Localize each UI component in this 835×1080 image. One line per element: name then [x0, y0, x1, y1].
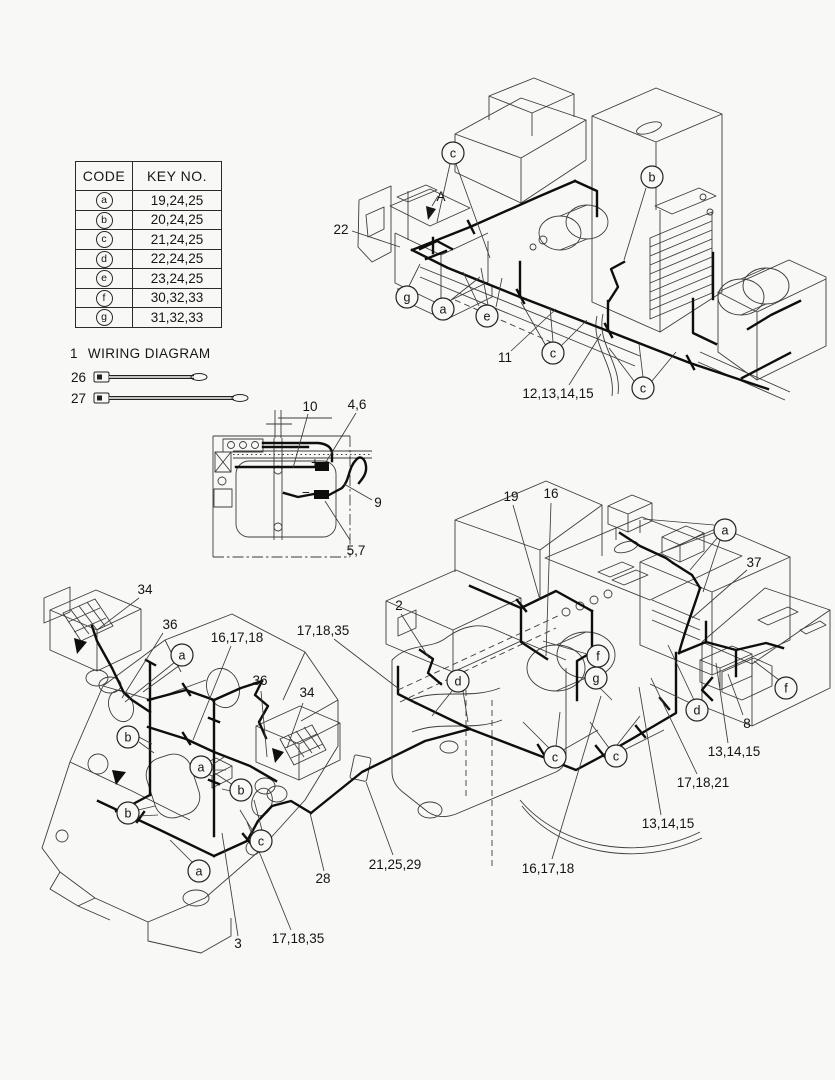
- svg-text:b: b: [125, 807, 132, 821]
- part-label: 16: [543, 486, 558, 501]
- top-rear-view-art: [358, 78, 826, 400]
- callout-a: a: [188, 860, 210, 882]
- part-label: 4,6: [348, 397, 367, 412]
- callout-b: b: [117, 726, 139, 748]
- svg-text:d: d: [694, 704, 701, 718]
- callout-c: c: [250, 830, 272, 852]
- part-label: 5,7: [347, 543, 366, 558]
- svg-text:f: f: [784, 682, 788, 696]
- svg-text:a: a: [440, 303, 447, 317]
- svg-text:c: c: [640, 382, 646, 396]
- callout-g: g: [396, 286, 418, 308]
- view-arrow-label: A: [436, 189, 445, 204]
- callout-c: c: [544, 746, 566, 768]
- part-label: 13,14,15: [642, 816, 695, 831]
- part-label: 16,17,18: [211, 630, 264, 645]
- callout-b: b: [230, 779, 252, 801]
- part-label: 37: [746, 555, 761, 570]
- svg-text:d: d: [455, 675, 462, 689]
- svg-text:e: e: [484, 310, 491, 324]
- svg-text:a: a: [179, 649, 186, 663]
- svg-text:c: c: [258, 835, 264, 849]
- callout-c: c: [542, 342, 564, 364]
- part-label: 34: [299, 685, 315, 700]
- svg-text:f: f: [596, 650, 600, 664]
- svg-text:b: b: [238, 784, 245, 798]
- part-label: 10: [302, 399, 317, 414]
- svg-text:a: a: [198, 761, 205, 775]
- callout-g: g: [585, 667, 607, 689]
- svg-text:g: g: [404, 291, 411, 305]
- callout-c: c: [605, 745, 627, 767]
- callout-f: f: [587, 645, 609, 667]
- part-label: 3: [234, 936, 242, 951]
- part-label: 16,17,18: [522, 861, 575, 876]
- callout-a: a: [432, 298, 454, 320]
- part-label: 22: [333, 222, 348, 237]
- callout-b: b: [641, 166, 663, 188]
- callout-a: a: [190, 756, 212, 778]
- minus-terminal-label: −: [302, 485, 310, 500]
- svg-text:c: c: [550, 347, 556, 361]
- callout-a: a: [171, 644, 193, 666]
- part-label: 9: [374, 495, 382, 510]
- part-label: 2: [395, 598, 403, 613]
- callout-c: c: [442, 142, 464, 164]
- part-label: 17,18,21: [677, 775, 730, 790]
- svg-text:c: c: [450, 147, 456, 161]
- part-label: 28: [315, 871, 330, 886]
- battery-box-inset-art: [213, 410, 372, 557]
- part-label: 34: [137, 582, 153, 597]
- callout-c: c: [632, 377, 654, 399]
- callout-e: e: [476, 305, 498, 327]
- svg-text:a: a: [722, 524, 729, 538]
- svg-text:b: b: [649, 171, 656, 185]
- callout-b: b: [117, 802, 139, 824]
- callout-circles-layer: cbgaeccafgddfccababbca: [117, 142, 797, 882]
- svg-text:a: a: [196, 865, 203, 879]
- svg-text:c: c: [613, 750, 619, 764]
- svg-text:g: g: [593, 672, 600, 686]
- callout-d: d: [447, 670, 469, 692]
- callout-f: f: [775, 677, 797, 699]
- wiring-diagram-art: 22A1112,13,14,15104,695,7+−343616,17,183…: [0, 0, 835, 1080]
- part-label: 36: [252, 673, 267, 688]
- parts-diagram-page: CODE KEY NO. a19,24,25b20,24,25c21,24,25…: [0, 0, 835, 1080]
- part-label: 19: [503, 489, 518, 504]
- part-label: 17,18,35: [272, 931, 325, 946]
- part-label: 13,14,15: [708, 744, 761, 759]
- part-label: 17,18,35: [297, 623, 350, 638]
- part-label: 11: [498, 350, 512, 365]
- plus-terminal-label: +: [311, 455, 319, 470]
- callout-d: d: [686, 699, 708, 721]
- svg-text:b: b: [125, 731, 132, 745]
- part-label: 21,25,29: [369, 857, 422, 872]
- callout-a: a: [714, 519, 736, 541]
- part-label: 12,13,14,15: [522, 386, 593, 401]
- part-label: 36: [162, 617, 177, 632]
- svg-text:c: c: [552, 751, 558, 765]
- part-label: 8: [743, 716, 751, 731]
